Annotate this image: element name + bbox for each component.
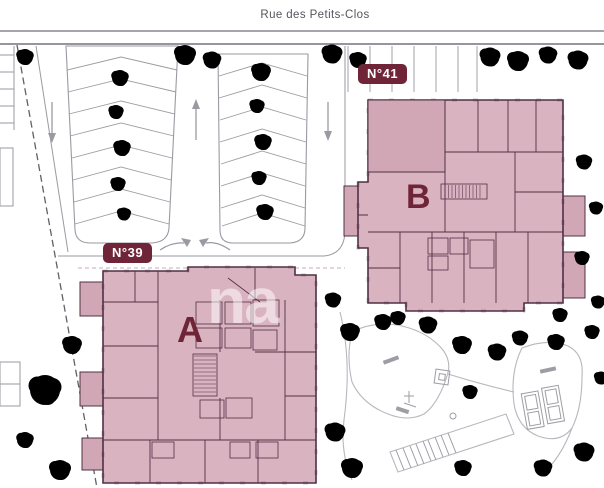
- building-b-address-label[interactable]: N°41: [358, 64, 407, 84]
- pond: [450, 413, 456, 419]
- tree-icon: [29, 375, 62, 405]
- play-structure: [404, 391, 416, 407]
- garden-beds: [521, 385, 565, 429]
- tree-icon: [547, 334, 565, 350]
- site-plan-drawing: [0, 0, 604, 488]
- tree-icon: [341, 458, 363, 478]
- tree-icon: [325, 423, 346, 442]
- tree-icon: [594, 372, 604, 385]
- tree-icon: [452, 336, 472, 354]
- site-plan: Rue des Petits-Clos N°41 N°39 B A na: [0, 0, 604, 488]
- playground-path: [349, 324, 449, 418]
- tree-icon: [591, 296, 604, 309]
- tree-icon: [322, 45, 343, 64]
- up-arrow-icon: [192, 99, 200, 140]
- bench: [396, 406, 410, 414]
- tree-icon: [539, 47, 558, 64]
- tree-icon: [512, 331, 529, 346]
- tree-icon: [325, 293, 342, 308]
- curve-arrow-right-icon: [160, 238, 191, 250]
- tree-icon: [576, 155, 593, 170]
- tree-icon: [574, 443, 595, 462]
- watermark: na: [207, 264, 278, 338]
- tree-icon: [16, 432, 34, 448]
- tree-icon: [552, 308, 567, 322]
- street: [0, 31, 604, 44]
- tree-icon: [62, 336, 82, 354]
- bench: [383, 355, 399, 364]
- building-a-letter[interactable]: A: [177, 309, 203, 351]
- tree-icon: [568, 51, 589, 70]
- tree-icon: [419, 317, 438, 334]
- building-b[interactable]: [344, 100, 585, 311]
- tree-icon: [462, 385, 477, 399]
- down-arrow-icon: [48, 102, 56, 143]
- tree-icon: [584, 325, 599, 339]
- tree-icon: [374, 314, 392, 330]
- street-name: Rue des Petits-Clos: [0, 9, 604, 21]
- tree-icon: [480, 48, 501, 67]
- ramp: [390, 414, 514, 472]
- tree-icon: [49, 460, 71, 480]
- down-arrow-icon-2: [324, 102, 332, 141]
- building-a-address-label[interactable]: N°39: [103, 243, 152, 263]
- tree-icon: [488, 344, 507, 361]
- tree-icon: [454, 460, 472, 476]
- tree-icon: [390, 311, 405, 325]
- tree-icon: [589, 202, 603, 215]
- building-a[interactable]: [80, 267, 316, 483]
- building-b-letter[interactable]: B: [406, 178, 431, 217]
- bench: [540, 366, 556, 373]
- play-square: [434, 369, 450, 385]
- tree-icon: [534, 460, 553, 477]
- tree-icon: [507, 51, 529, 71]
- tree-icon: [16, 49, 34, 65]
- tree-icon: [340, 323, 360, 341]
- neighbour-parcel-marks: [0, 46, 20, 406]
